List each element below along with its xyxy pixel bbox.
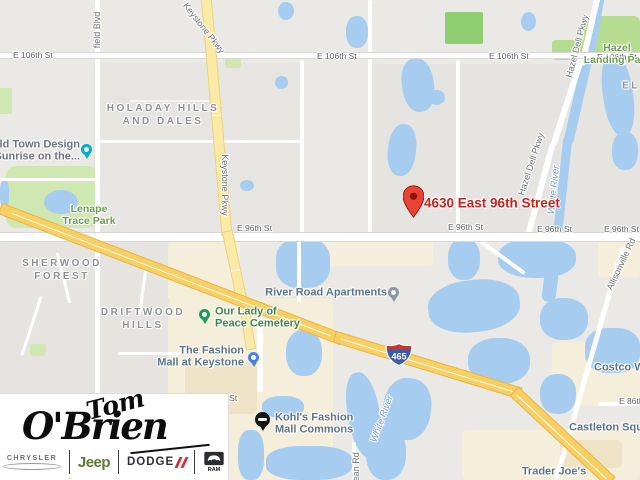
park-label-hazel-landing: Hazel Landing Park xyxy=(584,42,640,66)
brand-ram: RAM xyxy=(203,451,225,473)
destination-pin[interactable] xyxy=(403,185,424,218)
road xyxy=(95,140,302,143)
neighborhood-line: FOREST xyxy=(22,270,102,283)
pond xyxy=(278,2,294,20)
pond xyxy=(276,238,330,288)
chrysler-wing-icon xyxy=(3,463,61,470)
road xyxy=(0,178,95,181)
ram-wordmark: RAM xyxy=(208,467,221,473)
pond xyxy=(286,330,322,376)
pond xyxy=(540,298,588,340)
poi-line: Our Lady of xyxy=(215,307,300,319)
brand-divider xyxy=(118,450,119,474)
shield-route-number: 465 xyxy=(391,352,406,362)
dealer-logo: Tom O'Brien CHRYSLER Jeep DODGE R xyxy=(0,393,229,480)
poi-label-costco[interactable]: Costco Wholesale xyxy=(594,362,640,374)
park-label-line: Lenape xyxy=(62,203,115,215)
road xyxy=(368,0,372,240)
pond xyxy=(238,430,264,480)
poi-pin-shopping-icon[interactable] xyxy=(248,352,259,363)
road-label: field Blvd xyxy=(92,12,102,49)
street-label: E 106th St xyxy=(317,51,357,61)
pond xyxy=(612,132,638,170)
pond xyxy=(448,238,480,280)
pond xyxy=(275,76,288,89)
brand-chrysler: CHRYSLER xyxy=(3,455,61,470)
road-label: Keystone Pkwy xyxy=(220,154,230,216)
street-label: E 96th St xyxy=(237,223,272,233)
poi-label-trader-joes[interactable]: Trader Joe's xyxy=(522,466,586,478)
ram-head-icon xyxy=(203,451,225,466)
street-label: E 106th St xyxy=(489,51,529,61)
street-label: E 96th St xyxy=(448,222,483,232)
neighborhood-line: HILLS xyxy=(101,319,185,332)
park-area xyxy=(0,88,12,114)
pond xyxy=(240,180,254,191)
neighborhood-label: SHERWOOD FOREST xyxy=(22,257,102,283)
interstate-465-shield: 465 xyxy=(384,343,414,366)
brand-dodge: DODGE xyxy=(127,456,186,468)
neighborhood-line: AND DALES xyxy=(107,115,220,128)
pond xyxy=(426,275,523,336)
poi-line: Mall at Keystone xyxy=(157,357,244,369)
pond xyxy=(540,374,576,414)
chrysler-wordmark: CHRYSLER xyxy=(7,455,57,462)
brand-divider xyxy=(194,450,195,474)
poi-label-kohls-fashion-mall-commons[interactable]: Kohl's Fashion Mall Commons xyxy=(275,413,353,436)
poi-label-our-lady-of-peace-cemetery[interactable]: Our Lady of Peace Cemetery xyxy=(215,307,300,330)
poi-line: Costco Wholesale xyxy=(594,362,640,374)
poi-line: The Fashion xyxy=(157,346,244,358)
neighborhood-label: EL xyxy=(622,80,640,93)
poi-line: (Sunrise on the... xyxy=(0,151,80,163)
poi-line: River Road Apartments xyxy=(265,287,387,299)
poi-line: Peace Cemetery xyxy=(215,318,300,330)
street-label: E 106th St xyxy=(13,50,53,60)
park-label-line: Landing Park xyxy=(584,54,640,66)
pond xyxy=(346,16,368,48)
neighborhood-line: HOLADAY HILLS xyxy=(107,102,220,115)
poi-line: Kohl's Fashion xyxy=(275,413,353,425)
pond xyxy=(521,12,536,31)
map-block xyxy=(92,63,304,233)
poi-label-fashion-mall[interactable]: The Fashion Mall at Keystone xyxy=(157,346,244,369)
neighborhood-line: EL xyxy=(622,80,640,93)
neighborhood-line: SHERWOOD xyxy=(22,257,102,270)
street-label: E 96th St xyxy=(604,224,639,234)
park-area xyxy=(445,12,483,44)
poi-line: Mall Commons xyxy=(275,424,353,436)
street-label: E 96th St xyxy=(537,224,572,234)
road-label: Dean Rd xyxy=(351,452,361,480)
pond xyxy=(266,446,352,480)
poi-line: Old Town Design xyxy=(0,140,80,152)
logo-script-obrien: O'Brien xyxy=(22,404,167,448)
road xyxy=(300,60,304,236)
dodge-wordmark: DODGE xyxy=(127,456,174,468)
neighborhood-label: HOLADAY HILLS AND DALES xyxy=(107,102,220,128)
destination-address-label: 4630 East 96th Street xyxy=(424,196,560,211)
pond xyxy=(498,238,576,278)
poi-pin-apartments-icon[interactable] xyxy=(388,287,399,298)
park-area xyxy=(30,344,46,356)
park-label-line: Trace Park xyxy=(62,215,115,227)
map-canvas[interactable]: 465 E 106th St E 106th St E 106th St E 1… xyxy=(0,0,640,480)
poi-line: Trader Joe's xyxy=(522,466,586,478)
poi-label-river-road-apartments[interactable]: River Road Apartments xyxy=(265,287,387,299)
brand-row: CHRYSLER Jeep DODGE RAM xyxy=(3,447,225,477)
poi-pin-cemetery-icon[interactable] xyxy=(199,309,210,320)
neighborhood-label: DRIFTWOOD HILLS xyxy=(101,306,185,332)
street-label: E 86th St xyxy=(619,396,640,406)
poi-line: Castleton Square xyxy=(569,422,640,434)
road-westfield-blvd xyxy=(95,0,100,398)
neighborhood-line: DRIFTWOOD xyxy=(101,306,185,319)
park-label-lenape: Lenape Trace Park xyxy=(62,203,115,227)
poi-label-old-town-design[interactable]: Old Town Design (Sunrise on the... xyxy=(0,140,80,163)
poi-pin-lodging-icon[interactable] xyxy=(81,144,92,155)
brand-divider xyxy=(69,450,70,474)
poi-pin-kohls-icon[interactable] xyxy=(255,412,270,427)
poi-label-castleton-square[interactable]: Castleton Square xyxy=(569,422,640,434)
pond xyxy=(428,90,445,105)
park-label-line: Hazel xyxy=(584,42,640,54)
brand-jeep: Jeep xyxy=(78,454,110,471)
